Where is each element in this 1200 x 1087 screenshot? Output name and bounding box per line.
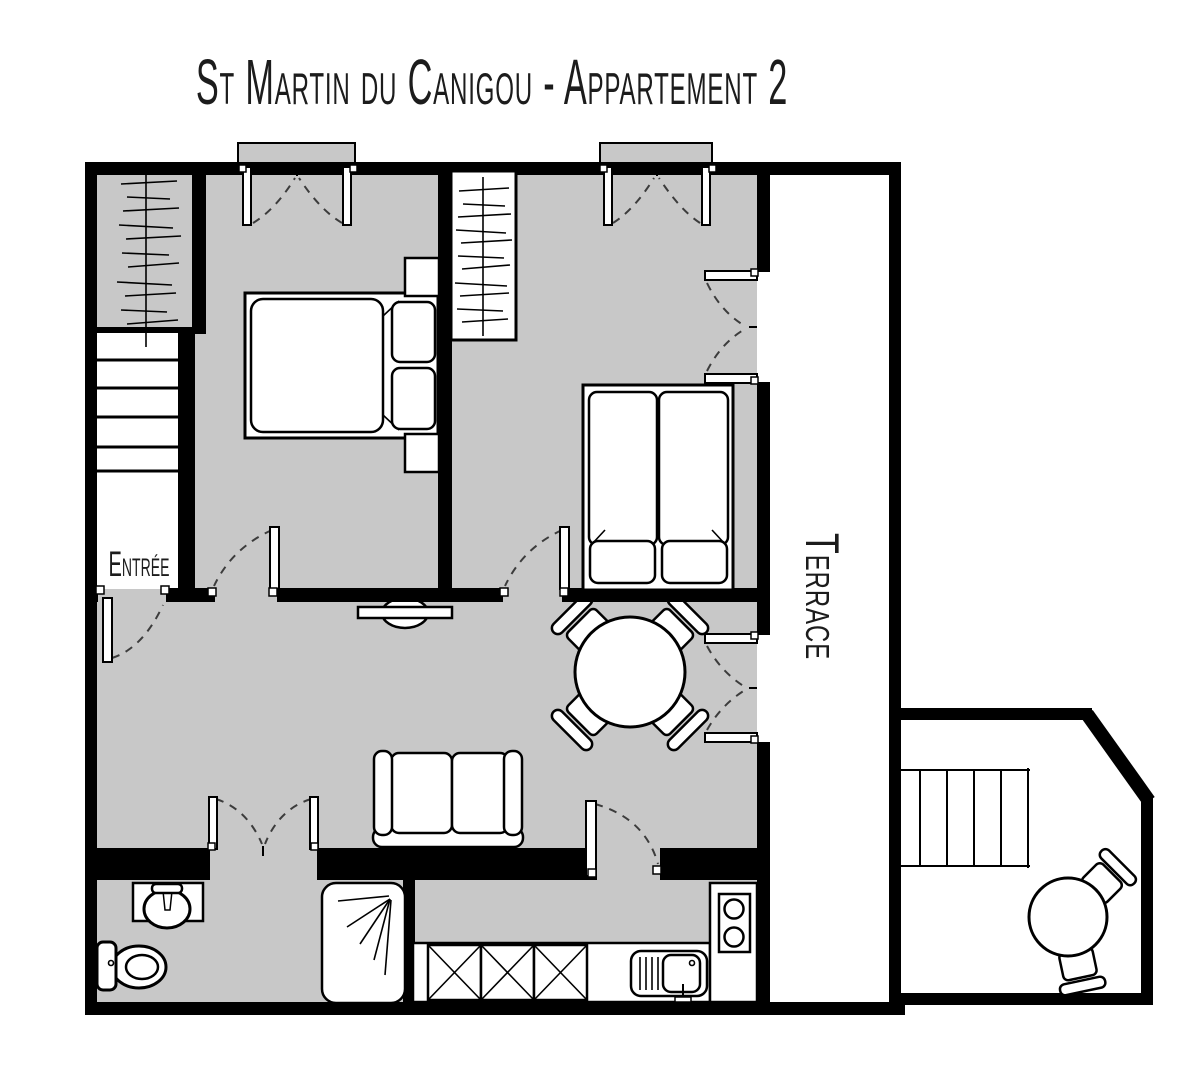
shower-icon bbox=[322, 883, 405, 1003]
pillow bbox=[590, 541, 655, 583]
nightstand-icon bbox=[405, 434, 439, 472]
entrance-label: Entrée bbox=[109, 545, 170, 584]
terrace-table-icon bbox=[1029, 878, 1107, 956]
cabinet-icon bbox=[534, 945, 587, 1000]
toilet-icon bbox=[97, 942, 166, 990]
double-bed-icon bbox=[245, 293, 438, 438]
stove-icon bbox=[710, 883, 757, 1002]
terrace-label: Terrace bbox=[796, 533, 849, 660]
pillow bbox=[662, 541, 727, 583]
sofa-icon bbox=[373, 751, 523, 847]
page-title: St Martin du Canigou - Appartement 2 bbox=[196, 47, 788, 118]
pillow bbox=[392, 368, 435, 429]
wardrobe-icon bbox=[451, 171, 516, 340]
terrace-stairs-icon bbox=[901, 768, 1030, 868]
twin-beds-icon bbox=[583, 385, 733, 590]
nightstand-icon bbox=[405, 258, 439, 296]
washbasin-icon bbox=[133, 883, 203, 928]
floor-plan: St Martin du Canigou - Appartement 2 Ent… bbox=[0, 0, 1200, 1087]
pillow bbox=[392, 302, 435, 362]
lower-terrace bbox=[901, 768, 1138, 996]
floor-plan-page: St Martin du Canigou - Appartement 2 Ent… bbox=[0, 0, 1200, 1087]
cabinet-icon bbox=[481, 945, 534, 1000]
kitchen-sink-icon bbox=[631, 951, 707, 1002]
cabinet-icon bbox=[428, 945, 481, 1000]
dining-table-icon bbox=[575, 617, 685, 727]
